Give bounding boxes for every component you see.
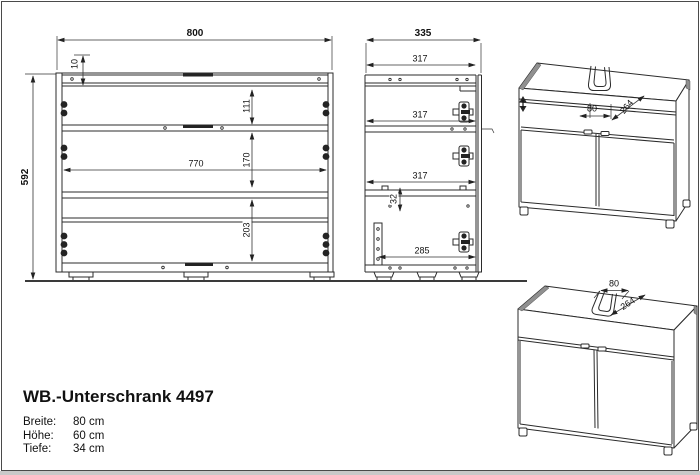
spec-label-tiefe: Tiefe: [23,443,73,457]
dim-label-cutout-width-bottom: 80 [608,280,620,289]
dim-label-front-middle-section: 170 [243,151,252,168]
spec-table: Breite: 80 cm Höhe: 60 cm Tiefe: 34 cm [23,416,104,457]
handle-dash-middle [183,125,213,128]
dim-label-cutout-width-top: 80 [586,105,598,114]
handle-dash-bottom [185,263,213,266]
spec-label-hoehe: Höhe: [23,430,73,444]
handle-dash-top [183,74,213,77]
door-handle [584,130,592,134]
front-feet [69,272,334,281]
side-feet [374,272,479,281]
door-handle [581,344,589,348]
spec-row-tiefe: Tiefe: 34 cm [23,443,104,457]
dim-label-front-inner-width: 770 [187,160,204,169]
dim-label-front-width: 800 [186,29,205,39]
dim-label-side-hole-offset: 32 [390,193,399,205]
dim-label-side-depth: 335 [414,29,433,39]
dim-label-front-bottom-section: 203 [243,221,252,238]
spec-row-hoehe: Höhe: 60 cm [23,430,104,444]
spec-row-breite: Breite: 80 cm [23,416,104,430]
dim-label-front-top-section: 111 [243,98,252,114]
product-title: WB.-Unterschrank 4497 [23,387,214,407]
spec-value-hoehe: 60 cm [73,430,104,444]
side-hinges [453,102,473,252]
front-view [25,36,334,281]
perspective-view-bottom [518,286,697,455]
spec-label-breite: Breite: [23,416,73,430]
side-view [365,40,494,281]
dim-label-side-depth-middle: 317 [411,111,428,120]
dim-label-side-depth-bottom: 317 [411,172,428,181]
dim-label-front-top-inset: 10 [71,58,80,70]
spec-value-tiefe: 34 cm [73,443,104,457]
dimension-sheet: 800 10 592 111 770 170 203 335 317 317 3… [0,0,700,475]
dim-label-side-depth-top: 317 [411,55,428,64]
page-bottom-shadow [0,471,700,475]
spec-value-breite: 80 cm [73,416,104,430]
perspective-view-top [519,63,690,228]
shelf-leader-line [482,129,495,133]
dim-label-side-depth-base: 285 [413,247,430,256]
dim-label-front-height: 592 [21,168,31,187]
door-handle [598,347,606,351]
door-handle [601,132,609,136]
